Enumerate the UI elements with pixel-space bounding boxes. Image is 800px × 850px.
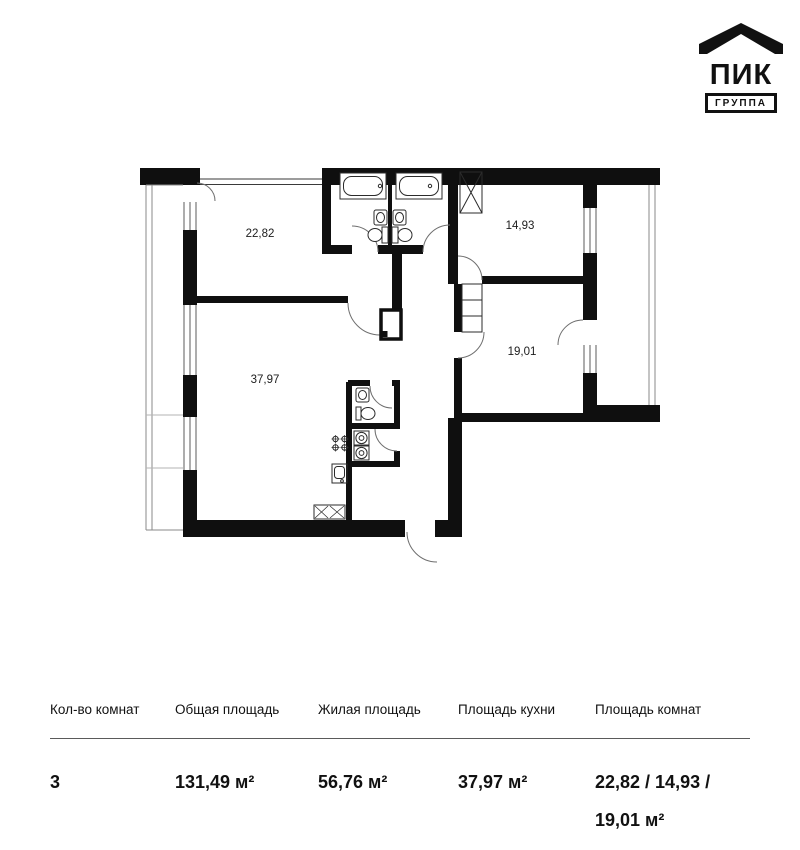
room-label-bedroom-1: 14,93 [506,220,535,232]
header-rooms-count: Кол-во комнат [50,702,175,717]
bench-icon [314,505,345,519]
summary-table: Кол-во комнат Общая площадь Жилая площад… [50,702,750,839]
stove-icon [332,435,349,452]
balcony-right [649,185,655,405]
toilet-icon [368,227,388,243]
balcony-door-right [558,320,583,345]
bedroom-2-door [458,332,484,358]
summary-values: 3 131,49 м² 56,76 м² 37,97 м² 22,82 / 14… [50,763,750,839]
pik-logo: ПИК ГРУППА [696,22,786,113]
wc-2-door [375,429,397,451]
closet-shelves-icon [462,284,482,332]
kitchen-fixtures [314,435,349,519]
entrance-door [407,532,437,562]
washer-icon [354,446,369,460]
kitchen-door [348,303,380,335]
floor-plan-page: ПИК ГРУППА [0,0,800,850]
sink-icon [393,210,406,225]
pik-roof-icon [696,22,786,55]
header-living-area: Жилая площадь [318,702,458,717]
washer-icon [354,431,369,445]
room-label-kitchen: 37,97 [251,374,280,386]
value-rooms-count: 3 [50,763,175,839]
value-rooms-area: 22,82 / 14,93 / 19,01 м² [595,763,750,839]
value-total-area: 131,49 м² [175,763,318,839]
logo-group: ГРУППА [705,93,777,113]
header-rooms-area: Площадь комнат [595,702,750,717]
kitchen-sink-icon [332,464,347,483]
summary-headers: Кол-во комнат Общая площадь Жилая площад… [50,702,750,739]
header-kitchen-area: Площадь кухни [458,702,595,717]
sink-icon [356,388,369,402]
bathroom-2-door [423,225,450,252]
value-kitchen-area: 37,97 м² [458,763,595,839]
logo-brand: ПИК [696,61,786,90]
bedroom-1-door [458,256,482,280]
balcony-left [146,185,183,530]
header-total-area: Общая площадь [175,702,318,717]
value-living-area: 56,76 м² [318,763,458,839]
sink-icon [374,210,387,225]
bathtub-icon [340,173,386,199]
panoramic-window [200,179,322,185]
toilet-icon [356,407,375,420]
bathtub-icon [396,173,442,199]
wc-1-door [370,386,392,408]
room-label-living: 22,82 [246,228,275,240]
toilet-icon [392,227,412,243]
vent-shaft [381,310,401,339]
balcony-door-left [197,183,215,201]
room-label-bedroom-2: 19,01 [508,346,537,358]
floor-plan: 22,82 14,93 19,01 37,97 [130,155,670,575]
